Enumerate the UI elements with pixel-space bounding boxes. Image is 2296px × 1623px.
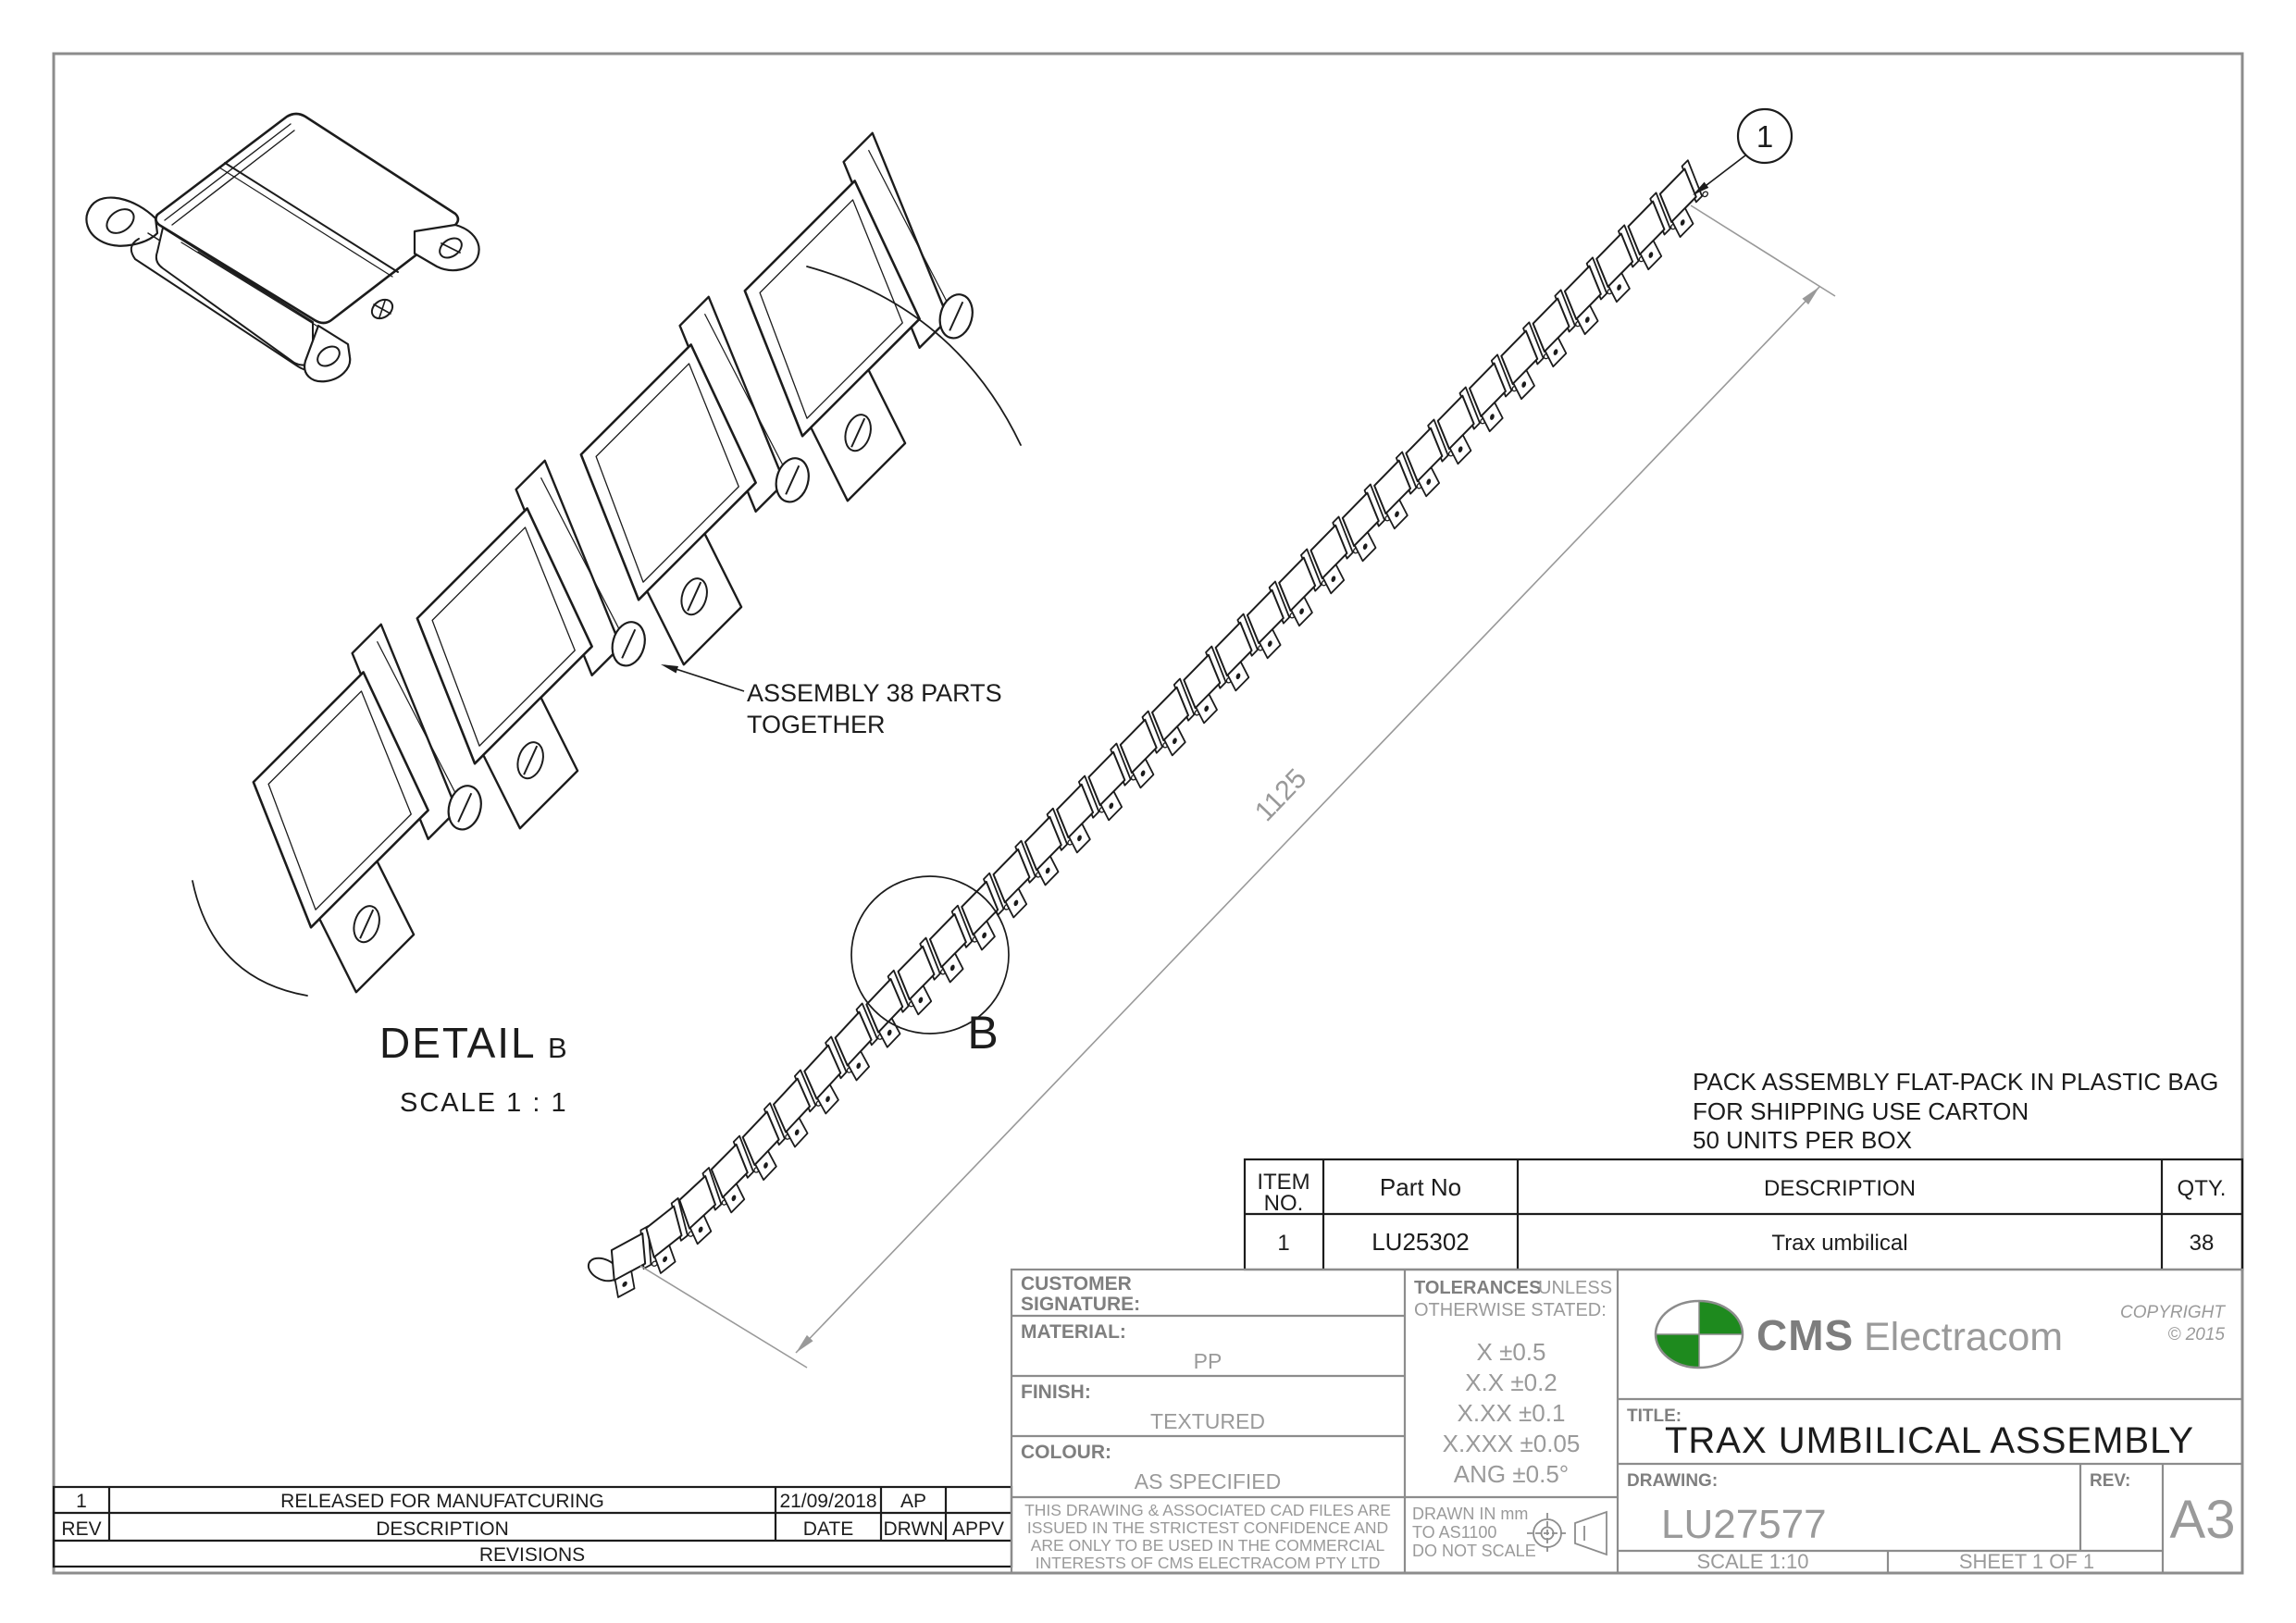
brand-electracom: Electracom (1864, 1315, 2063, 1359)
confidential-line3: ARE ONLY TO BE USED IN THE COMMERCIAL (1031, 1536, 1385, 1555)
tolerance-xxx: X.XX ±0.1 (1458, 1399, 1566, 1427)
rev-header-drwn: DRWN (884, 1518, 944, 1540)
rev-table-title: REVISIONS (479, 1544, 585, 1566)
drawing-sheet: DETAIL B SCALE 1 : 1 B 1125 1 ASSEMBLY 3… (0, 0, 2296, 1623)
rev-row-description: RELEASED FOR MANUFATCURING (280, 1491, 604, 1512)
colour-label: COLOUR: (1021, 1442, 1111, 1463)
sheet-size: A3 (2170, 1490, 2236, 1550)
bom-cell-part: LU25302 (1371, 1228, 1470, 1256)
rev-header-description: DESCRIPTION (376, 1518, 509, 1540)
drawing-title: TRAX UMBILICAL ASSEMBLY (1665, 1420, 2194, 1461)
bom-cell-description: Trax umbilical (1771, 1231, 1907, 1256)
customer-label-1: CUSTOMER (1021, 1273, 1132, 1295)
pack-note-line2: FOR SHIPPING USE CARTON (1693, 1097, 2029, 1125)
brand-copyright-year: © 2015 (2167, 1325, 2225, 1344)
rev-row-date: 21/09/2018 (779, 1491, 876, 1512)
bom-cell-qty: 38 (2190, 1231, 2215, 1256)
rev-header-date: DATE (803, 1518, 853, 1540)
assembly-note-line1: ASSEMBLY 38 PARTS (747, 679, 1002, 707)
material-value: PP (1194, 1349, 1222, 1373)
finish-value: TEXTURED (1150, 1409, 1265, 1433)
tolerances-label-bold: TOLERANCES (1414, 1278, 1541, 1298)
detail-callout-letter: B (967, 1007, 998, 1059)
detail-caption-letter: B (548, 1032, 567, 1064)
customer-label-2: SIGNATURE: (1021, 1294, 1140, 1315)
tolerance-ang: ANG ±0.5° (1454, 1460, 1569, 1488)
rev-row-drwn: AP (900, 1491, 926, 1512)
scale-value: SCALE 1:10 (1696, 1550, 1808, 1573)
bom-header-part: Part No (1380, 1173, 1461, 1201)
rev-header-rev: REV (61, 1518, 101, 1540)
colour-value: AS SPECIFIED (1135, 1469, 1281, 1493)
balloon-number: 1 (1756, 119, 1773, 154)
rev-header-appv: APPV (952, 1518, 1004, 1540)
bom-cell-item: 1 (1277, 1231, 1289, 1256)
tolerance-xxxx: X.XXX ±0.05 (1443, 1430, 1581, 1457)
rev-row-rev: 1 (76, 1491, 87, 1512)
bom-header-qty: QTY. (2178, 1176, 2227, 1201)
pack-note-line1: PACK ASSEMBLY FLAT-PACK IN PLASTIC BAG (1693, 1068, 2218, 1096)
pack-note-line3: 50 UNITS PER BOX (1693, 1126, 1912, 1154)
material-label: MATERIAL: (1021, 1321, 1126, 1343)
brand-cms: CMS (1756, 1311, 1854, 1359)
confidential-line1: THIS DRAWING & ASSOCIATED CAD FILES ARE (1024, 1501, 1391, 1519)
bom-header-description: DESCRIPTION (1764, 1176, 1916, 1201)
tolerance-x: X ±0.5 (1477, 1338, 1546, 1366)
drawn-note-line1: DRAWN IN mm (1412, 1505, 1528, 1523)
sheet-value: SHEET 1 OF 1 (1959, 1550, 2094, 1573)
rev-label: REV: (2090, 1471, 2130, 1491)
detail-caption-word: DETAIL (379, 1019, 537, 1067)
confidential-line4: INTERESTS OF CMS ELECTRACOM PTY LTD (1036, 1554, 1381, 1572)
finish-label: FINISH: (1021, 1381, 1091, 1403)
brand-copyright: COPYRIGHT (2120, 1303, 2226, 1322)
drawing-label: DRAWING: (1627, 1471, 1718, 1491)
cms-logo (1656, 1301, 1743, 1368)
bom-header-item-2: NO. (1264, 1191, 1304, 1216)
drawn-note-line3: DO NOT SCALE (1412, 1542, 1536, 1560)
confidential-line2: ISSUED IN THE STRICTEST CONFIDENCE AND (1027, 1518, 1388, 1537)
tolerances-label-line2: OTHERWISE STATED: (1414, 1300, 1607, 1320)
tolerance-xx: X.X ±0.2 (1465, 1369, 1558, 1396)
tolerances-label-rest: UNLESS (1538, 1278, 1612, 1298)
assembly-note-line2: TOGETHER (747, 711, 886, 738)
detail-caption-scale: SCALE 1 : 1 (400, 1088, 568, 1118)
drawing-number: LU27577 (1661, 1502, 1827, 1547)
drawn-note-line2: TO AS1100 (1412, 1523, 1496, 1542)
